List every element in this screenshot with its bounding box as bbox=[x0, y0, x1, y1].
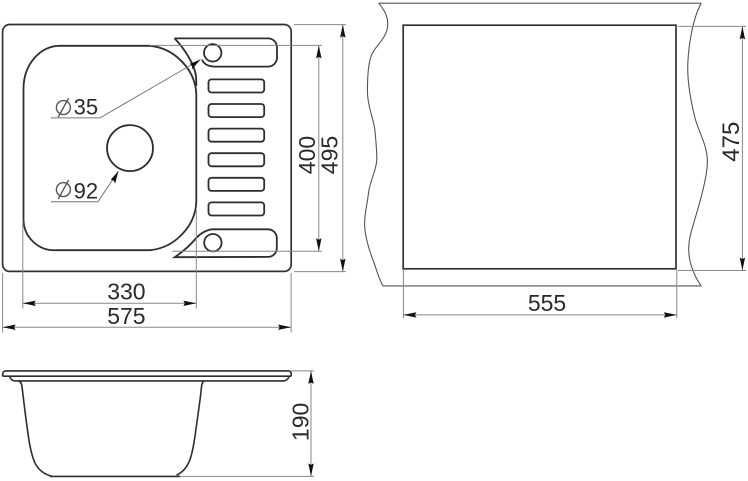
svg-text:35: 35 bbox=[74, 94, 98, 119]
svg-text:330: 330 bbox=[107, 279, 145, 305]
svg-text:475: 475 bbox=[718, 122, 745, 162]
svg-text:555: 555 bbox=[528, 290, 566, 316]
svg-text:190: 190 bbox=[288, 403, 314, 441]
svg-text:495: 495 bbox=[317, 136, 343, 174]
svg-text:92: 92 bbox=[74, 178, 98, 203]
svg-text:575: 575 bbox=[107, 303, 145, 329]
